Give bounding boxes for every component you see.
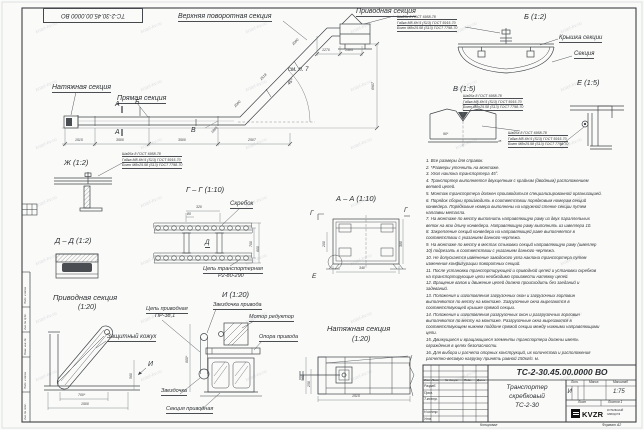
- note-item: 6. Порядок сборки производить в соответс…: [426, 198, 602, 216]
- dim-800-star: 800*: [186, 356, 190, 363]
- dim-700: 700: [250, 241, 254, 247]
- note-item: 9. На монтаже по месту в местах стыковки…: [426, 242, 602, 254]
- view-mark-b: Б: [135, 99, 140, 106]
- dim-380: 380: [400, 241, 404, 247]
- view-zh-lines: [54, 162, 124, 211]
- drive-sprocket-label: Звездочка привода: [213, 303, 262, 310]
- note-item: 3. Угол наклона транспортера 45°.: [426, 171, 602, 177]
- titleblock-designation: ТС-2-30.45.00.0000 ВО: [490, 368, 634, 377]
- frame-label-vzam-inv: Взам. инв. №: [24, 338, 27, 355]
- note-item: 13. Положения и изготовления загрузочных…: [426, 293, 602, 311]
- tb-row-utv: Утв.: [424, 418, 432, 421]
- view-aa-dims: [327, 219, 403, 274]
- fastener-line: Шайба 8 ГОСТ 6958-78: [122, 152, 182, 157]
- note-item: 15. Движущиеся и вращающиеся элементы тр…: [426, 337, 602, 349]
- tb-row-prov: Пров.: [424, 392, 433, 395]
- section-mark-a-top: А: [115, 101, 120, 108]
- fastener-line: Гайка М8-6Н.5 (S13) ГОСТ 5915-70: [463, 100, 523, 105]
- note-item: 14. Положения и изготовления разгрузочны…: [426, 312, 602, 336]
- view-mark-i: И: [148, 361, 153, 368]
- sprocket-label: Звездочка: [161, 389, 187, 396]
- tb-sheets-label: Листов 1: [608, 401, 622, 404]
- scraper-label: Скребок: [230, 201, 253, 209]
- tb-header-mass: Масса: [589, 381, 598, 384]
- view-dd-lines: [56, 254, 98, 278]
- note-item: 16. Для выбора и расчета опорных констру…: [426, 350, 602, 362]
- view-drv-title: Приводная секция: [53, 294, 117, 302]
- note-item: 8. Закрепление секций конвейера на напра…: [426, 229, 602, 241]
- drive-support-label: Опора привода: [259, 335, 298, 342]
- dim-258: 258: [308, 381, 312, 387]
- tb-row-tkontr: Т.контр.: [424, 398, 438, 401]
- frame-label-podp-data-2: Подп. и дата: [24, 372, 27, 389]
- tb-header-dokum: № докум.: [445, 379, 458, 382]
- view-ten-lines: [300, 355, 414, 396]
- view-gg-lines: [153, 208, 252, 266]
- dim-80: 80: [187, 213, 191, 217]
- view-ten-title: Натяжная секция: [327, 325, 390, 333]
- stamp-designation: ТС-2-30.45.00.0000 ВО: [43, 8, 143, 23]
- titleblock-name-1: Транспортер: [488, 385, 566, 392]
- dim-3500-b: 3500: [178, 139, 186, 143]
- note-item: 11. После установки транспортирующей и п…: [426, 268, 602, 280]
- fastener-line: Шайба 8 ГОСТ 6958-78: [508, 131, 568, 136]
- view-drv-dims: [48, 360, 134, 410]
- tb-header-scale: Масштаб: [613, 381, 628, 384]
- tb-header-lit: Лит.: [571, 381, 578, 384]
- note-item: 4. Транспортер выполняется двухцепным с …: [426, 178, 602, 190]
- fastener-line: Гайка М8-6Н.5 (S13) ГОСТ 5915-70: [122, 158, 182, 163]
- dim-1500: 1500: [81, 403, 89, 407]
- motor-reducer-label: Мотор редуктор: [249, 315, 294, 322]
- dim-560-drv: 560: [130, 373, 134, 379]
- dim-600: 600: [257, 246, 261, 252]
- frame-label-inv-dubl: Инв. № дубл.: [24, 313, 27, 330]
- fastener-line: Болт М8х25.58 (S13) ГОСТ 7798-70: [397, 26, 457, 31]
- main-elevation-lines: [62, 14, 394, 136]
- technical-notes: 1. Все размеры для справок. 2. *Размеры …: [426, 158, 602, 363]
- view-gg-title: Г – Г (1:10): [186, 186, 224, 194]
- titleblock-name-2: скребковый: [488, 394, 566, 401]
- fastener-line: Болт М8х25.58 (S13) ГОСТ 7798-70: [122, 163, 182, 168]
- section-mark-d: Д: [205, 240, 210, 248]
- view-mark-v: В: [191, 127, 196, 134]
- fastener-line: Гайка М8-6Н.5 (S13) ГОСТ 5915-70: [397, 21, 457, 26]
- view-i-title: И (1:20): [222, 291, 249, 299]
- section-mark-g-left: Г: [310, 211, 314, 218]
- fastener-line: Болт М8х25.58 (S13) ГОСТ 7798-70: [508, 142, 568, 147]
- view-gg-dims: [186, 211, 261, 263]
- section-label: Секция: [574, 51, 594, 59]
- drive-section-bottom-label: Секция приводная: [166, 407, 213, 414]
- tb-sheet-label: Лист: [578, 401, 586, 404]
- dim-1515: 1515: [75, 139, 83, 143]
- dim-560-ten: 560: [302, 375, 306, 381]
- dim-90: 90*: [443, 133, 448, 137]
- upper-section-label: Верхняя поворотная секция: [178, 13, 272, 22]
- dim-3500-a: 3500: [116, 139, 124, 143]
- fastener-line: Болт М8х25.58 (S13) ГОСТ 7798-70: [463, 105, 523, 110]
- fastener-note-3: Шайба 8 ГОСТ 6958-78 Гайка М8-6Н.5 (S13)…: [463, 94, 523, 111]
- note-item: 1. Все размеры для справок.: [426, 158, 602, 164]
- note-item: 5. Монтаж транспортера должен производит…: [426, 191, 602, 197]
- fastener-note-1: Шайба 8 ГОСТ 6958-78 Гайка М8-6Н.5 (S13)…: [122, 152, 182, 169]
- titleblock-name-3: ТС-2-30: [488, 403, 566, 410]
- frame-label-inv-podl: Инв. № подл.: [24, 403, 27, 420]
- dim-2507: 2507: [248, 139, 256, 143]
- view-b-title: Б (1:2): [524, 13, 546, 21]
- tb-row-nkontr: Н.контр.: [424, 411, 438, 414]
- dim-1505: 1505: [345, 49, 353, 53]
- tb-header-data: Дата: [477, 379, 485, 382]
- frame-label-podp-data-1: Подп. и дата: [24, 287, 27, 304]
- note-item: 12. Вращение валов и движение цепей долж…: [426, 280, 602, 292]
- tb-scale-value: 1:75: [613, 389, 625, 395]
- see-note-label: см. п. 7: [288, 67, 308, 73]
- note-item: 10. Не допускается изменение заводского …: [426, 255, 602, 267]
- dim-6907: 6907: [372, 82, 376, 90]
- dim-45: 45: [498, 140, 501, 143]
- view-zh-title: Ж (1:2): [64, 159, 88, 167]
- view-mark-e: Е: [312, 274, 316, 281]
- kvzr-logo-sub-2: ЗАВОД РФ: [607, 414, 620, 417]
- casing-label: Защитный кожух: [107, 334, 156, 342]
- chain-label-2: Р2-80-290: [218, 274, 244, 280]
- tb-liter-value: И: [568, 389, 572, 395]
- tb-header-podp: Подп.: [464, 379, 472, 382]
- fastener-note-2: Шайба 8 ГОСТ 6958-78 Гайка М8-6Н.5 (S13)…: [397, 15, 457, 32]
- view-e-title: Е (1:5): [577, 79, 600, 87]
- view-b-lines: [458, 27, 572, 73]
- view-dd-title: Д – Д (1:2): [55, 237, 91, 245]
- tb-row-razrab: Разраб.: [424, 385, 436, 388]
- format-label: Формат А2: [602, 424, 621, 428]
- view-e-lines: [570, 106, 624, 149]
- kvzr-logo-icon: [571, 409, 580, 418]
- note-item: 7. На монтаже по месту выполнить направл…: [426, 216, 602, 228]
- view-aa-lines: [318, 214, 410, 269]
- tb-header-list: Лист: [432, 379, 440, 382]
- view-drv-scale: (1:20): [78, 304, 96, 311]
- dim-1270: 1270: [322, 49, 330, 53]
- section-mark-g-right: Г: [404, 208, 408, 215]
- dim-320: 320: [196, 206, 202, 210]
- tb-header-izm: Изм.: [424, 379, 430, 382]
- dim-340: 340: [359, 267, 365, 271]
- dim-200: 200: [323, 241, 327, 247]
- fastener-line: Шайба 8 ГОСТ 6958-78: [463, 94, 523, 99]
- drive-chain-label-2: ПР-38,1: [155, 314, 175, 320]
- view-aa-title: А – А (1:10): [336, 195, 376, 203]
- chain-rollers: [156, 226, 249, 261]
- copied-label: Копировал: [480, 424, 497, 428]
- section-mark-a-bottom: А: [115, 129, 120, 136]
- dim-1515-ten: 1515: [352, 395, 360, 399]
- tension-section-label: Натяжная секция: [52, 84, 111, 93]
- view-ten-scale: (1:20): [352, 336, 370, 343]
- dim-700-star: 700*: [78, 394, 85, 398]
- view-v-title: В (1:5): [453, 85, 476, 93]
- drawing-sheet: kotel-kv.rukotel-kv.rukotel-kv.rukotel-k…: [0, 0, 644, 430]
- kvzr-logo-text: KVZR: [582, 410, 603, 419]
- cover-label: Крышка секции: [559, 35, 602, 43]
- fastener-line: Шайба 8 ГОСТ 6958-78: [397, 15, 457, 20]
- note-item: 2. *Размеры уточнить на монтаже.: [426, 165, 602, 171]
- fastener-note-4: Шайба 8 ГОСТ 6958-78 Гайка М8-6Н.5 (S13)…: [508, 131, 568, 148]
- fastener-line: Гайка М8-6Н.5 (S13) ГОСТ 5915-70: [508, 137, 568, 142]
- straight-section-label: Прямая секция: [117, 95, 166, 104]
